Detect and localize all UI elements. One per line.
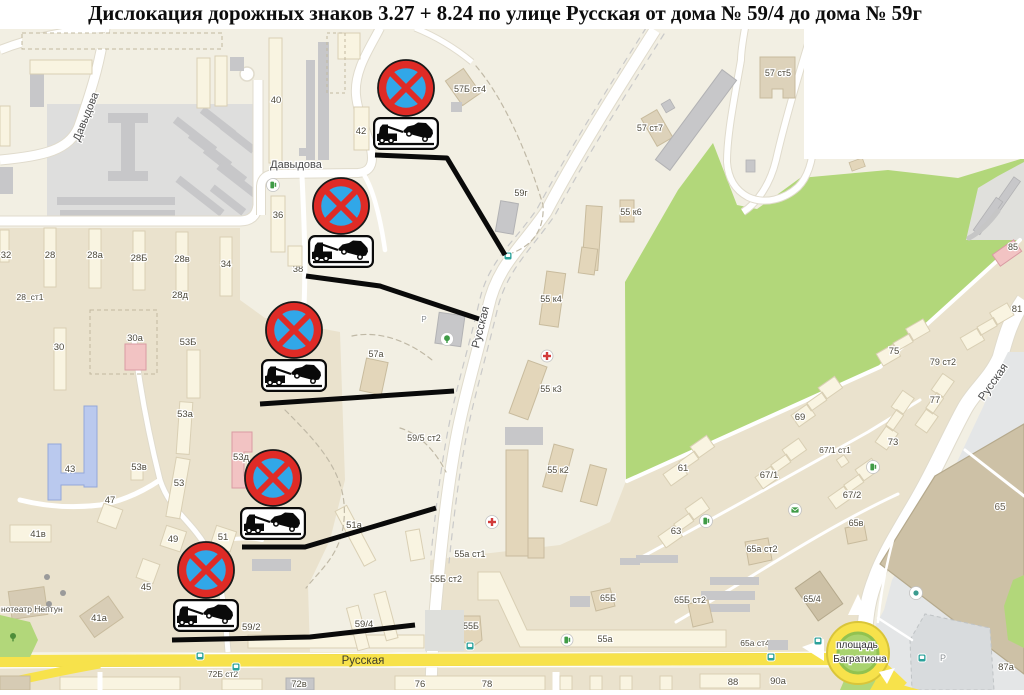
svg-text:34: 34 [221,259,232,270]
svg-text:Багратиона: Багратиона [833,654,887,665]
svg-text:55 к4: 55 к4 [540,294,561,304]
svg-text:Русская: Русская [342,655,385,667]
svg-text:55 к6: 55 к6 [620,207,641,217]
svg-text:57 ст5: 57 ст5 [765,68,791,78]
svg-text:59/5 ст2: 59/5 ст2 [407,433,441,443]
svg-text:28а: 28а [87,250,104,261]
svg-text:55Б ст2: 55Б ст2 [430,574,462,584]
svg-text:75: 75 [889,346,900,357]
svg-text:77: 77 [930,395,941,406]
svg-text:57Б ст4: 57Б ст4 [454,84,486,94]
svg-text:47: 47 [105,495,116,506]
svg-text:53Б: 53Б [180,337,197,348]
svg-text:28: 28 [45,250,56,261]
svg-text:45: 45 [141,582,152,593]
svg-text:65в: 65в [849,518,864,528]
svg-text:53д: 53д [233,452,250,463]
svg-text:57 ст7: 57 ст7 [637,123,663,133]
svg-text:69: 69 [795,412,806,423]
svg-text:28д: 28д [172,290,189,301]
svg-text:88: 88 [728,677,739,688]
svg-text:49: 49 [168,534,179,545]
svg-text:36: 36 [273,210,284,221]
svg-text:72в: 72в [291,679,307,690]
svg-text:81: 81 [1012,304,1023,315]
svg-text:41в: 41в [30,529,46,540]
svg-text:59г: 59г [514,188,528,198]
svg-text:79 ст2: 79 ст2 [930,357,956,367]
svg-text:53: 53 [174,478,185,489]
svg-text:65: 65 [994,502,1006,513]
svg-text:73: 73 [888,437,899,448]
svg-text:59/2: 59/2 [242,622,261,633]
svg-text:90а: 90а [770,676,787,687]
svg-text:41а: 41а [91,613,108,624]
svg-text:нотеатр Нептун: нотеатр Нептун [1,604,63,614]
svg-text:65а ст4: 65а ст4 [740,638,770,648]
svg-text:65/4: 65/4 [803,594,821,604]
svg-text:65Б: 65Б [600,593,616,603]
svg-text:67/2: 67/2 [843,490,862,501]
svg-text:76: 76 [415,679,426,690]
svg-text:28в: 28в [174,254,190,265]
svg-text:61: 61 [678,463,689,474]
svg-text:30: 30 [54,342,65,353]
svg-text:30а: 30а [127,333,144,344]
svg-text:43: 43 [65,464,76,475]
svg-text:40: 40 [271,95,282,106]
svg-text:57а: 57а [368,349,383,359]
svg-text:87а: 87а [998,662,1015,673]
svg-text:67/1 ст1: 67/1 ст1 [819,445,851,455]
svg-text:55 к3: 55 к3 [540,384,561,394]
svg-text:65а ст2: 65а ст2 [746,544,777,554]
svg-text:P: P [421,315,426,324]
svg-text:85: 85 [1008,242,1018,252]
svg-text:55а: 55а [597,634,612,644]
svg-text:P: P [940,653,946,663]
svg-text:28Б: 28Б [131,253,148,264]
svg-text:28_ст1: 28_ст1 [16,292,43,302]
svg-text:78: 78 [482,679,493,690]
svg-text:55Б: 55Б [463,621,479,631]
svg-text:53в: 53в [131,462,147,473]
svg-text:42: 42 [356,126,367,137]
svg-text:32: 32 [1,250,12,261]
svg-text:51: 51 [218,532,229,543]
svg-text:63: 63 [671,526,682,537]
svg-text:площадь: площадь [836,640,878,651]
svg-text:55 к2: 55 к2 [547,465,568,475]
svg-text:67/1: 67/1 [760,470,779,481]
svg-text:55а ст1: 55а ст1 [454,549,485,559]
svg-text:53а: 53а [177,409,194,420]
svg-text:Давыдова: Давыдова [270,159,323,171]
svg-text:65Б ст2: 65Б ст2 [674,595,706,605]
